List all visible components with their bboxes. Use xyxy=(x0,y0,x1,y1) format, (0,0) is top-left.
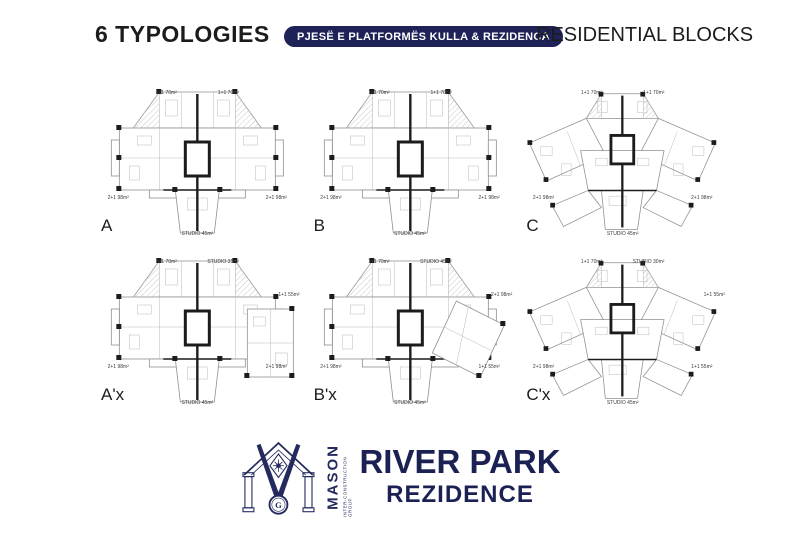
floorplan-card-a: 1+1 70m² 1+1 70m² 2+1 98m² 2+1 98m² STUD… xyxy=(93,86,302,238)
unit-label: 1+1 70m² xyxy=(430,91,451,96)
unit-label: 1+1 70m² xyxy=(218,91,239,96)
plan-letter-b: B xyxy=(314,216,325,236)
floorplan-card-bx: 1+1 70m² STUDIO 45m² 2+1 98m² 2+1 98m² 1… xyxy=(306,255,515,407)
unit-label: 2+1 98m² xyxy=(320,365,341,370)
unit-label: 2+1 98m² xyxy=(320,196,341,201)
unit-label: 1+1 70m² xyxy=(643,91,664,96)
unit-label: 1+1 55m² xyxy=(478,365,499,370)
emblem-letter: G xyxy=(275,500,282,510)
unit-label: STUDIO 45m² xyxy=(394,232,426,237)
unit-label: 2+1 98m² xyxy=(533,196,554,201)
unit-label: STUDIO 45m² xyxy=(607,232,639,237)
floorplan-card-ax: 1+1 70m² STUDIO 35m² 1+1 55m² 2+1 98m² 2… xyxy=(93,255,302,407)
brand-name: MASON xyxy=(324,444,341,510)
plan-letter-cx: C'x xyxy=(526,385,550,405)
unit-label: 2+1 98m² xyxy=(266,365,287,370)
mason-logo-icon: G xyxy=(239,436,317,518)
floorplan-card-cx: 1+1 70m² STUDIO 30m² 1+1 55m² 2+1 98m² 1… xyxy=(518,255,727,407)
brand-subtitle: INTER-CONSTRUCTION GROUP xyxy=(342,437,352,517)
unit-label: 2+1 98m² xyxy=(478,196,499,201)
project-title: RIVER PARK xyxy=(359,445,560,478)
unit-label: 1+1 70m² xyxy=(581,260,602,265)
brand-footer: G MASON INTER-CONSTRUCTION GROUP RIVER P… xyxy=(239,436,560,518)
unit-label: 2+1 98m² xyxy=(108,196,129,201)
plan-letter-bx: B'x xyxy=(314,385,337,405)
project-subtitle: REZIDENCE xyxy=(386,481,534,509)
plan-letter-c: C xyxy=(526,216,538,236)
unit-label: 1+1 70m² xyxy=(156,260,177,265)
unit-label: 2+1 98m² xyxy=(108,365,129,370)
floorplan-drawing-ax xyxy=(93,255,302,407)
unit-label: STUDIO 45m² xyxy=(607,401,639,406)
header-right-title: RESIDENTIAL BLOCKS xyxy=(536,24,753,47)
project-title-block: RIVER PARK REZIDENCE xyxy=(359,445,560,509)
unit-label: 2+1 98m² xyxy=(691,196,712,201)
unit-label: 2+1 98m² xyxy=(533,365,554,370)
unit-label: 1+1 55m² xyxy=(691,365,712,370)
floorplan-grid: 1+1 70m² 1+1 70m² 2+1 98m² 2+1 98m² STUD… xyxy=(93,86,727,407)
floorplan-drawing-c xyxy=(518,86,727,238)
floorplan-card-c: 1+1 70m² 1+1 70m² 2+1 98m² 2+1 98m² STUD… xyxy=(518,86,727,238)
platform-badge: PJESË E PLATFORMËS KULLA & REZIDENCA xyxy=(284,26,563,47)
unit-label: STUDIO 45m² xyxy=(394,401,426,406)
brand-name-block: MASON INTER-CONSTRUCTION GROUP xyxy=(324,437,352,517)
presentation-slide: 6 TYPOLOGIES PJESË E PLATFORMËS KULLA & … xyxy=(0,0,800,533)
unit-label: STUDIO 35m² xyxy=(207,260,239,265)
unit-label: 1+1 70m² xyxy=(581,91,602,96)
floorplan-card-b: 1+1 70m² 1+1 70m² 2+1 98m² 2+1 98m² STUD… xyxy=(306,86,515,238)
floorplan-drawing-a xyxy=(93,86,302,238)
plan-letter-a: A xyxy=(101,216,112,236)
plan-letter-ax: A'x xyxy=(101,385,124,405)
unit-label: 1+1 70m² xyxy=(368,91,389,96)
unit-label: 1+1 70m² xyxy=(156,91,177,96)
unit-label: 1+1 55m² xyxy=(704,293,725,298)
unit-label: 1+1 55m² xyxy=(278,293,299,298)
page-title: 6 TYPOLOGIES xyxy=(95,21,270,48)
unit-label: STUDIO 45m² xyxy=(181,401,213,406)
unit-label: STUDIO 45m² xyxy=(420,260,452,265)
floorplan-drawing-b xyxy=(306,86,515,238)
unit-label: 2+1 98m² xyxy=(266,196,287,201)
unit-label: 2+1 98m² xyxy=(491,293,512,298)
unit-label: STUDIO 45m² xyxy=(181,232,213,237)
unit-label: STUDIO 30m² xyxy=(633,260,665,265)
unit-label: 1+1 70m² xyxy=(368,260,389,265)
